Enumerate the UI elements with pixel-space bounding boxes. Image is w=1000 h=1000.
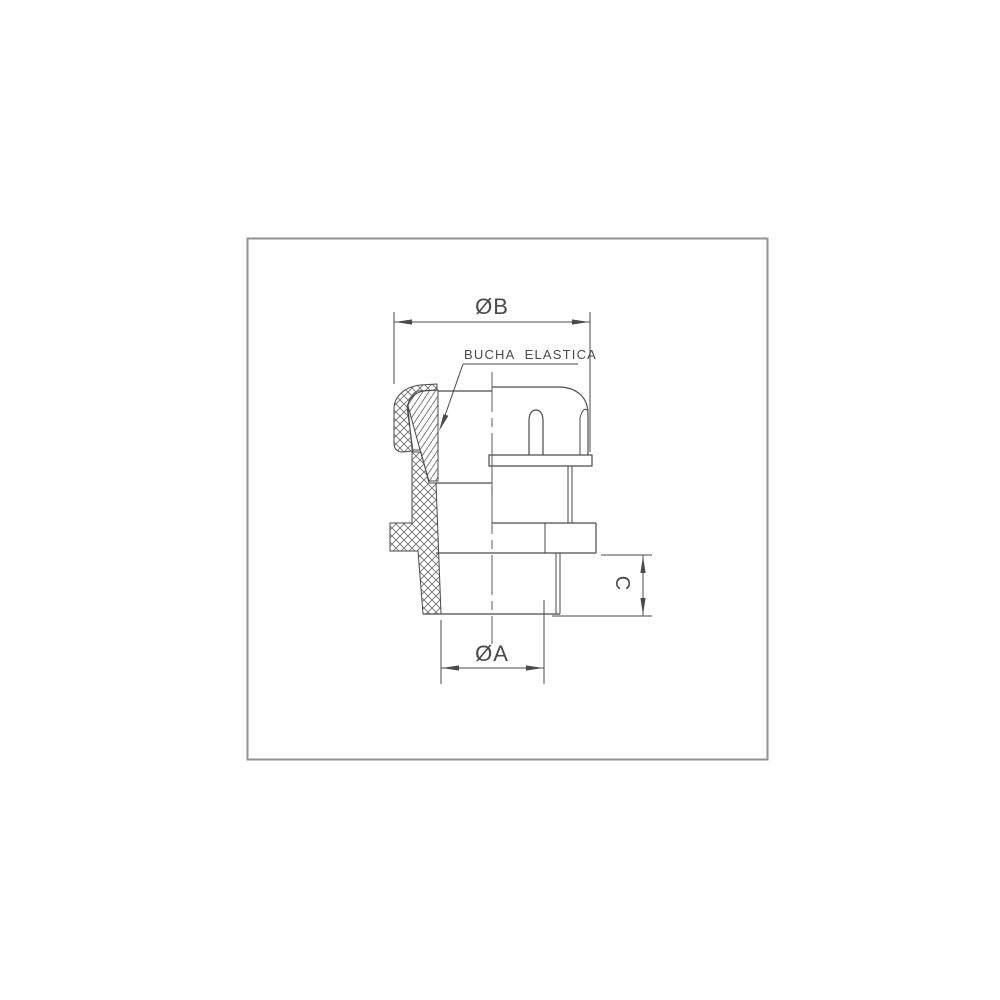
gland-drawing [390,384,596,614]
pin-outline [529,410,543,455]
dim-b-text: ØB [475,294,509,319]
drawing-sheet: ØB ØA C [0,0,1000,1000]
drawing-svg: ØB ØA C [0,0,1000,1000]
flange-plate-outline [489,455,592,466]
dim-a-text: ØA [475,641,509,666]
dome-cap-outline [492,387,588,455]
leader-arrow [439,414,448,431]
nut-outline [436,523,596,553]
body-outline [436,391,492,483]
stem-lines [492,466,572,523]
dim-c-text: C [611,576,633,590]
dim-c-extension-lines [552,555,652,616]
dim-c: C [552,555,652,616]
bushing-label-text: BUCHA ELASTICA [464,347,597,362]
dim-a: ØA [441,600,544,684]
bushing-callout: BUCHA ELASTICA [439,347,597,431]
